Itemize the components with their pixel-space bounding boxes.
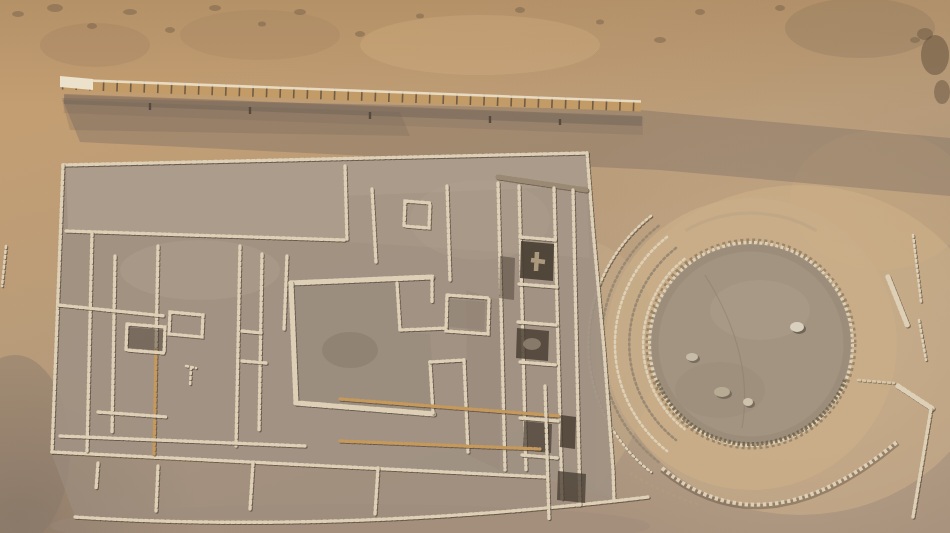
sand-patch xyxy=(40,23,150,67)
pit-feature xyxy=(523,338,541,350)
floor-light-patch xyxy=(120,240,280,300)
aerial-photo xyxy=(0,0,950,533)
sand-patch xyxy=(180,10,340,60)
sunken-room xyxy=(127,327,164,351)
wall-fragment xyxy=(2,246,6,286)
annex-room-floor xyxy=(449,299,485,330)
central-plaza-wall xyxy=(400,328,448,330)
rectangular-compound xyxy=(52,152,648,522)
sand-patch xyxy=(785,0,935,58)
excavated-pit xyxy=(560,415,576,449)
rock-outcrop-top-right xyxy=(917,28,950,104)
scene-canvas xyxy=(0,0,950,533)
sand-patch xyxy=(360,15,600,75)
excavated-pit xyxy=(499,256,515,300)
plaza-dark-smudge xyxy=(322,332,378,368)
central-plaza-wall xyxy=(430,360,464,362)
excavated-pit xyxy=(557,471,586,503)
circular-plaza-interior xyxy=(648,241,854,447)
